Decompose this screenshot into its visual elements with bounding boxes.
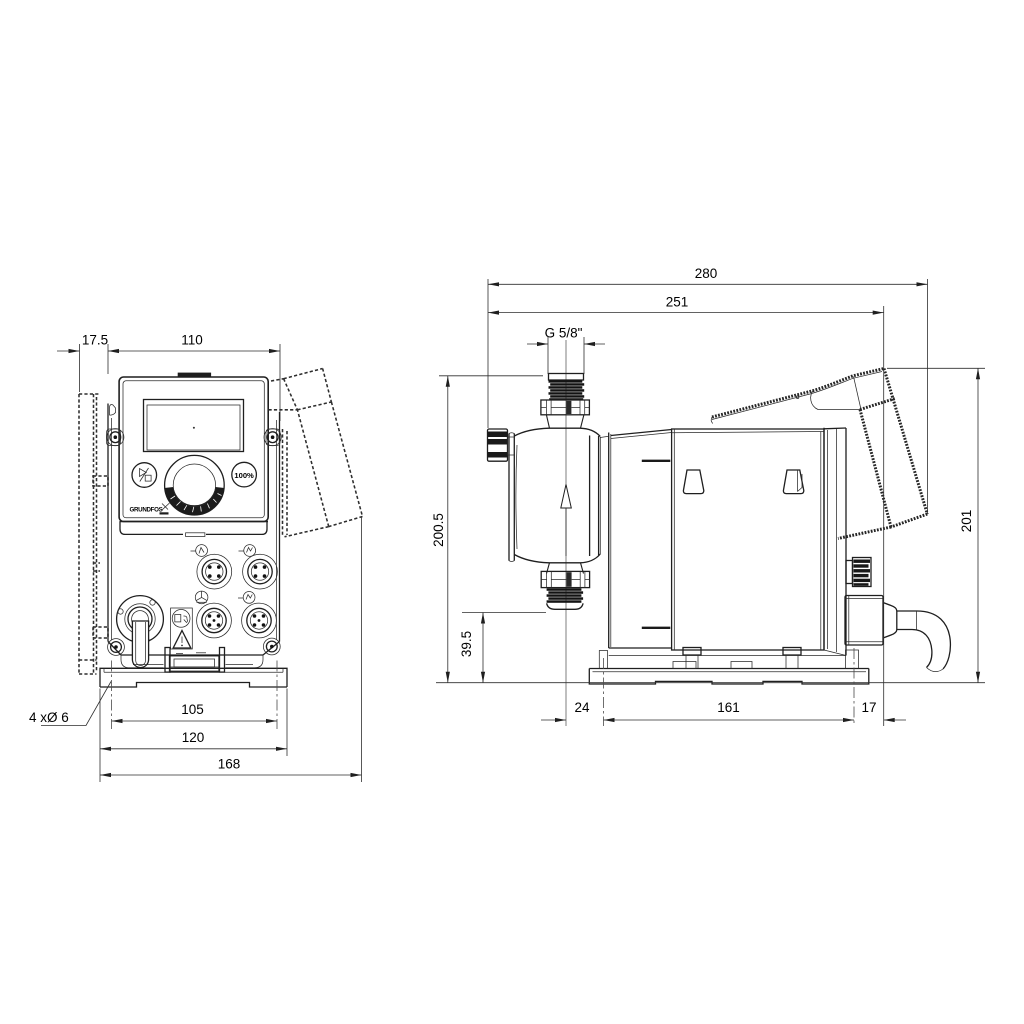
svg-text:110: 110: [181, 333, 203, 348]
svg-text:251: 251: [666, 295, 689, 310]
svg-text:161: 161: [717, 700, 740, 715]
svg-text:120: 120: [182, 730, 205, 745]
svg-text:39.5: 39.5: [459, 631, 474, 657]
svg-text:100%: 100%: [234, 471, 254, 480]
svg-text:4 xØ 6: 4 xØ 6: [29, 710, 69, 725]
svg-text:G 5/8": G 5/8": [545, 326, 583, 341]
svg-text:105: 105: [181, 702, 204, 717]
svg-text:GRUNDFOS: GRUNDFOS: [130, 507, 163, 514]
svg-text:24: 24: [574, 700, 590, 715]
svg-text:17.5: 17.5: [82, 333, 108, 348]
svg-text:201: 201: [959, 510, 974, 533]
svg-text:280: 280: [695, 266, 718, 281]
svg-text:200.5: 200.5: [431, 513, 446, 547]
svg-text:17: 17: [861, 700, 876, 715]
svg-text:168: 168: [218, 757, 241, 772]
